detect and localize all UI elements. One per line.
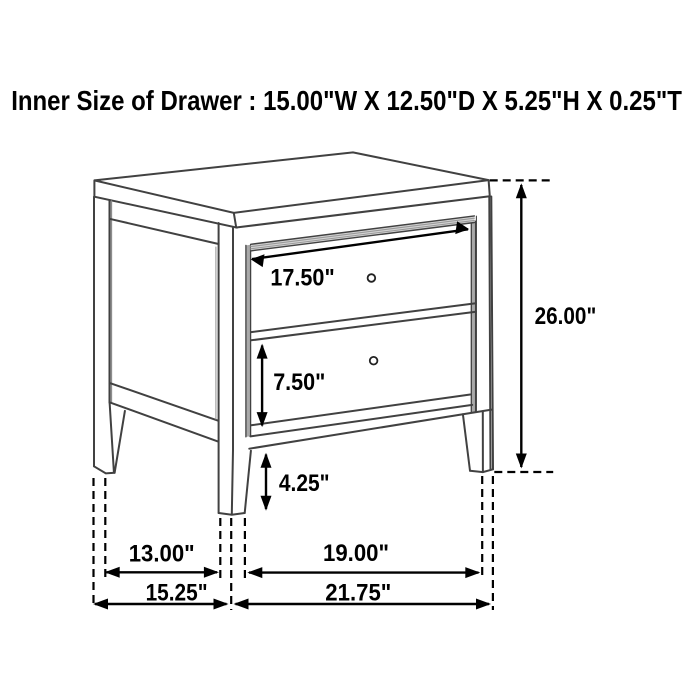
svg-text:21.75": 21.75" [325,580,391,607]
svg-text:13.00": 13.00" [129,541,195,568]
svg-text:Inner Size of Drawer : 15.00"W: Inner Size of Drawer : 15.00"W X 12.50"D… [11,85,682,116]
svg-text:19.00": 19.00" [323,540,389,567]
svg-text:7.50": 7.50" [273,369,325,396]
svg-text:26.00": 26.00" [535,303,597,330]
svg-text:15.25": 15.25" [146,580,208,607]
svg-text:17.50": 17.50" [270,265,334,292]
svg-text:4.25": 4.25" [279,470,330,497]
